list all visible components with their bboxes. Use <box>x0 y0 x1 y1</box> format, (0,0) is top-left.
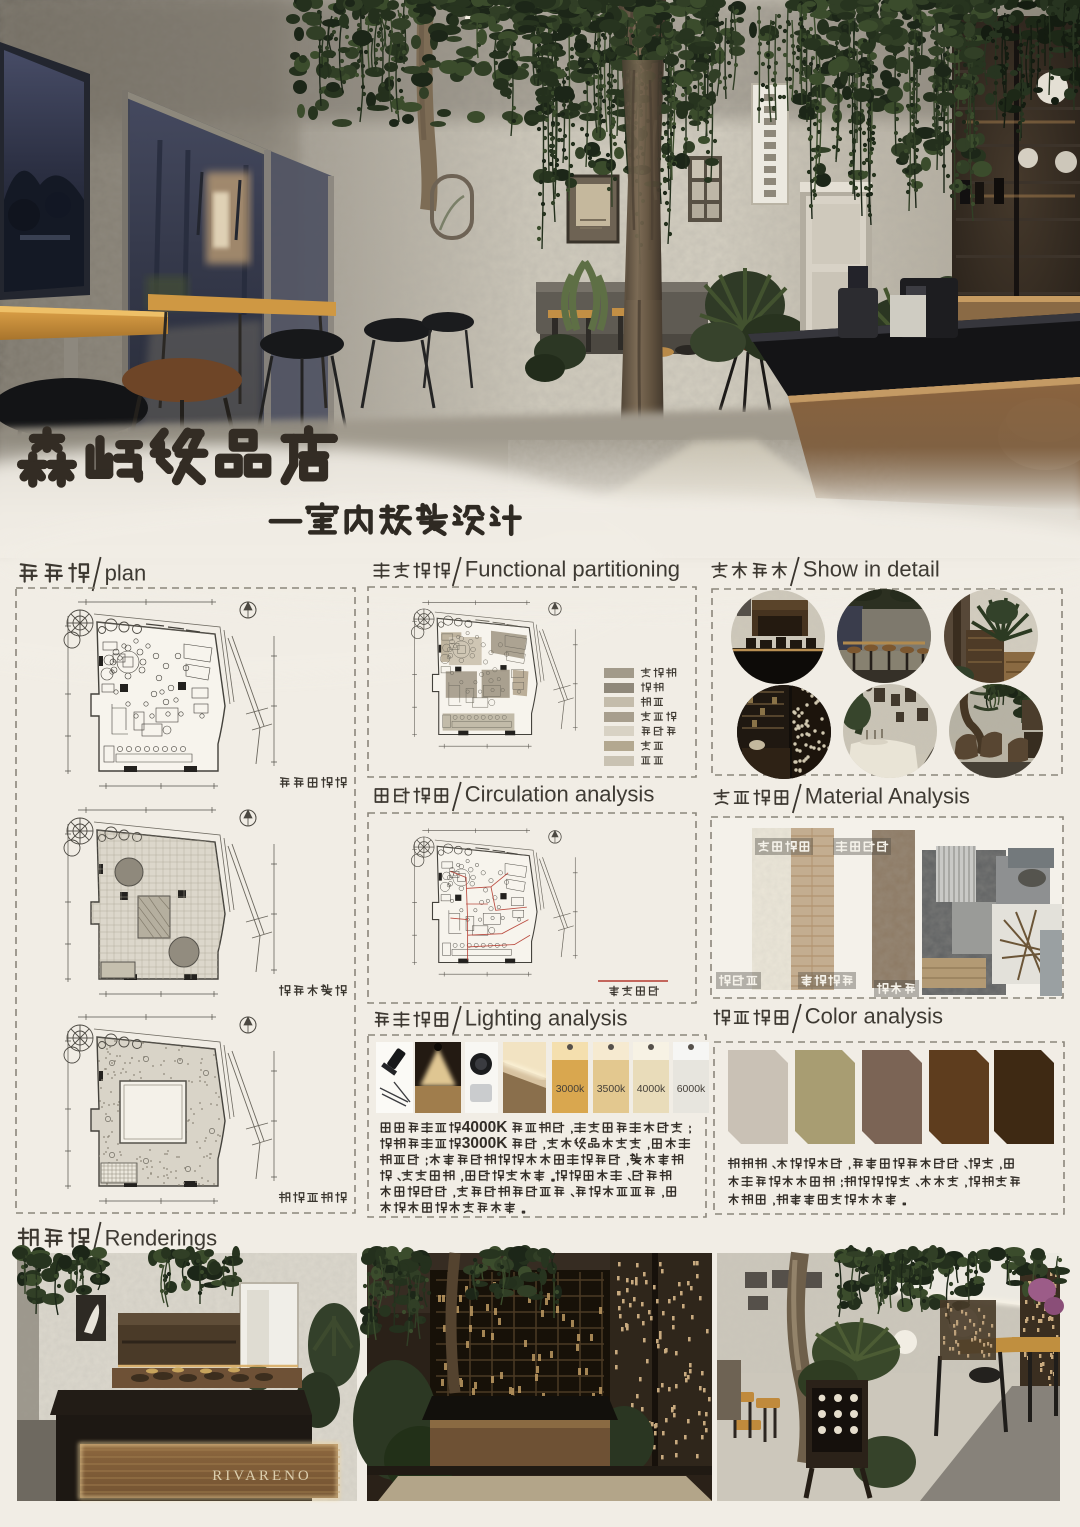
svg-text:Lighting analysis: Lighting analysis <box>465 1006 628 1031</box>
svg-text:Color analysis: Color analysis <box>805 1004 943 1029</box>
svg-text:4000K: 4000K <box>462 1119 508 1136</box>
svg-text:RIVARENO: RIVARENO <box>212 1468 312 1484</box>
svg-text:3000k: 3000k <box>556 1083 585 1095</box>
svg-text:6000k: 6000k <box>677 1083 706 1095</box>
svg-text:3500k: 3500k <box>597 1083 626 1095</box>
svg-text:Show in detail: Show in detail <box>803 557 940 582</box>
svg-text:Functional partitioning: Functional partitioning <box>465 557 680 582</box>
svg-text:Renderings: Renderings <box>105 1226 218 1251</box>
svg-text:4000k: 4000k <box>637 1083 666 1095</box>
svg-text:Material Analysis: Material Analysis <box>805 784 970 809</box>
svg-text:3000K: 3000K <box>462 1135 508 1152</box>
svg-text:plan: plan <box>105 561 147 586</box>
svg-text:Circulation analysis: Circulation analysis <box>465 782 655 807</box>
